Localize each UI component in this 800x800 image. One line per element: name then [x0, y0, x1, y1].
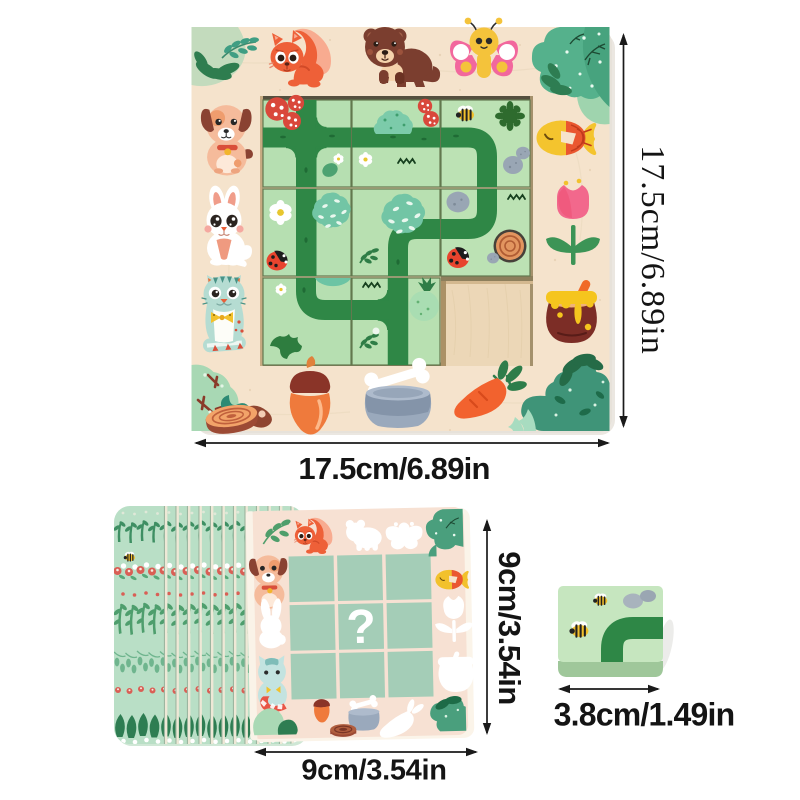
svg-text:?: ?	[346, 601, 376, 655]
